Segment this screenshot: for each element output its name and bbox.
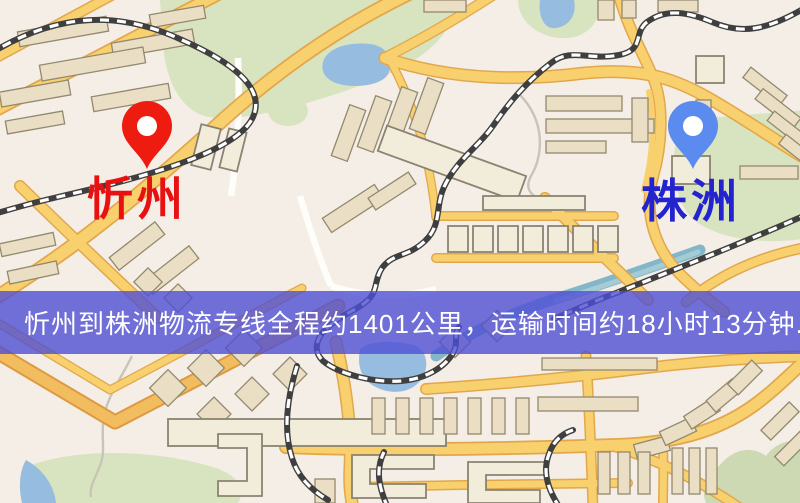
route-info-banner: 忻州到株洲物流专线全程约1401公里，运输时间约18小时13分钟.: [0, 291, 800, 354]
map-image: 忻州 株洲: [0, 0, 800, 503]
route-map-screenshot: 忻州 株洲 忻州到株洲物流专线全程约1401公里，运输时间约18小时13分钟.: [0, 0, 800, 503]
origin-city-label: 忻州: [87, 174, 187, 225]
route-info-text: 忻州到株洲物流专线全程约1401公里，运输时间约18小时13分钟.: [24, 304, 800, 341]
destination-city-label: 株洲: [641, 176, 741, 227]
